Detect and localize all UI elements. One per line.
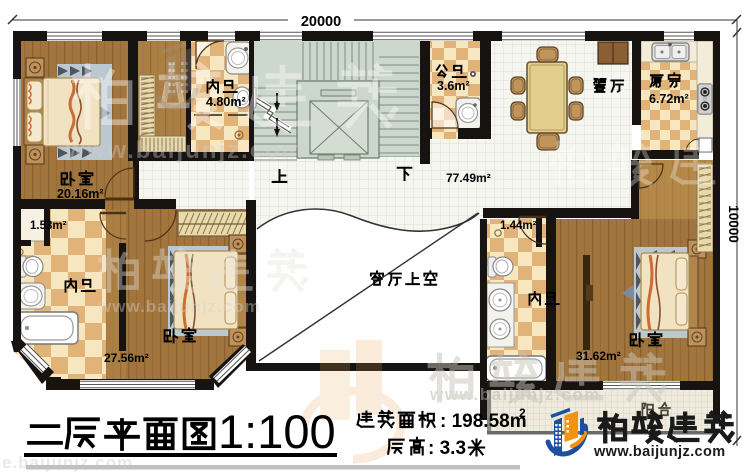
svg-text:1.53m²: 1.53m²	[30, 220, 67, 232]
svg-text:3.6m²: 3.6m²	[437, 79, 470, 93]
svg-text:1:100: 1:100	[218, 405, 336, 458]
svg-text:6.72m²: 6.72m²	[649, 92, 689, 106]
svg-text:77.49m²: 77.49m²	[446, 171, 491, 185]
svg-text:www.baijunjz.com: www.baijunjz.com	[429, 385, 601, 404]
svg-text:10000: 10000	[726, 205, 741, 243]
svg-text:20000: 20000	[301, 14, 341, 30]
svg-text:31.62m²: 31.62m²	[576, 349, 621, 363]
svg-text:2: 2	[519, 406, 526, 420]
svg-text:www.baijunjz.com: www.baijunjz.com	[593, 444, 726, 460]
svg-text:www.baijunjz.com: www.baijunjz.com	[65, 137, 305, 164]
svg-text:20.16m²: 20.16m²	[57, 187, 104, 201]
svg-text:: 198.58m: : 198.58m	[440, 411, 527, 432]
svg-text:27.56m²: 27.56m²	[104, 351, 149, 365]
svg-text:www.baijunjz.com: www.baijunjz.com	[97, 297, 261, 316]
svg-text:4.80m²: 4.80m²	[206, 95, 246, 109]
svg-text:1.44m²: 1.44m²	[500, 220, 537, 232]
svg-text:: 3.3: : 3.3	[428, 438, 466, 459]
